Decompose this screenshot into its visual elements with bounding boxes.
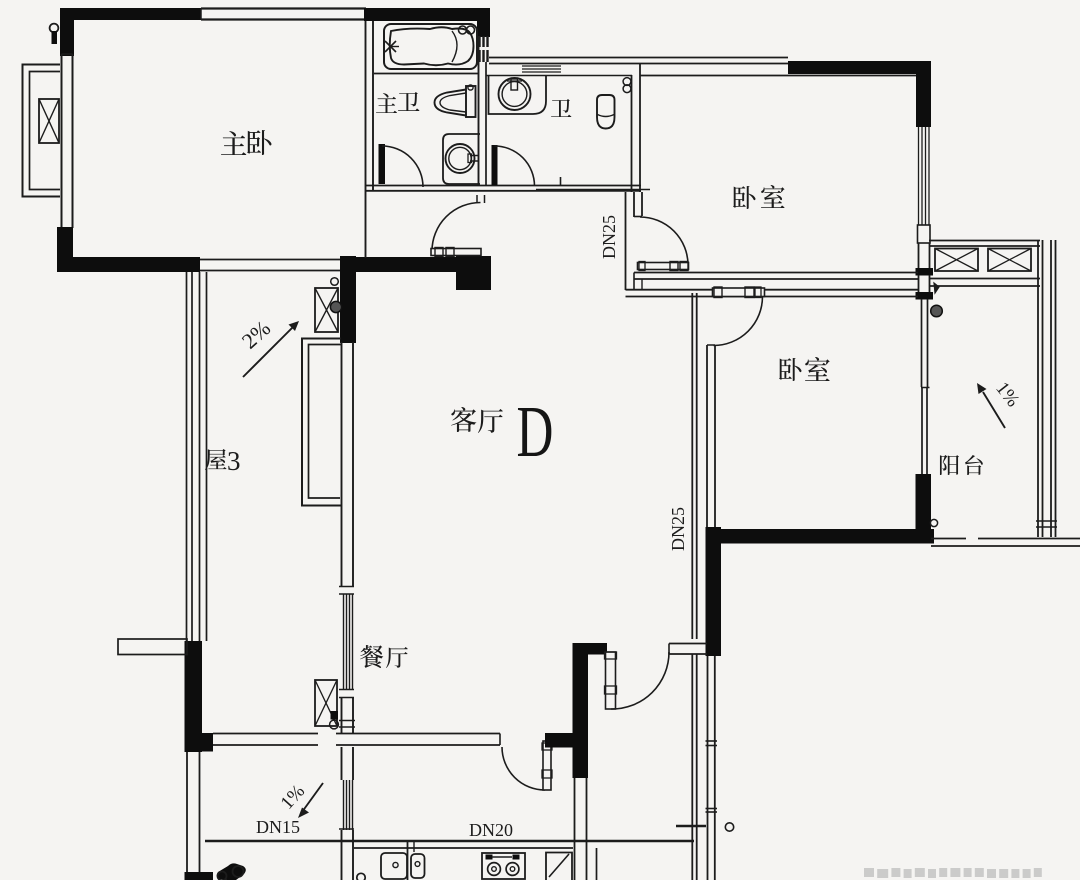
svg-text:DN15: DN15 bbox=[256, 817, 300, 837]
svg-text:D: D bbox=[517, 391, 554, 472]
svg-text:DN25: DN25 bbox=[599, 215, 619, 259]
svg-text:DN20: DN20 bbox=[469, 820, 513, 840]
svg-text:3: 3 bbox=[227, 446, 241, 476]
svg-text:DN25: DN25 bbox=[668, 507, 688, 551]
